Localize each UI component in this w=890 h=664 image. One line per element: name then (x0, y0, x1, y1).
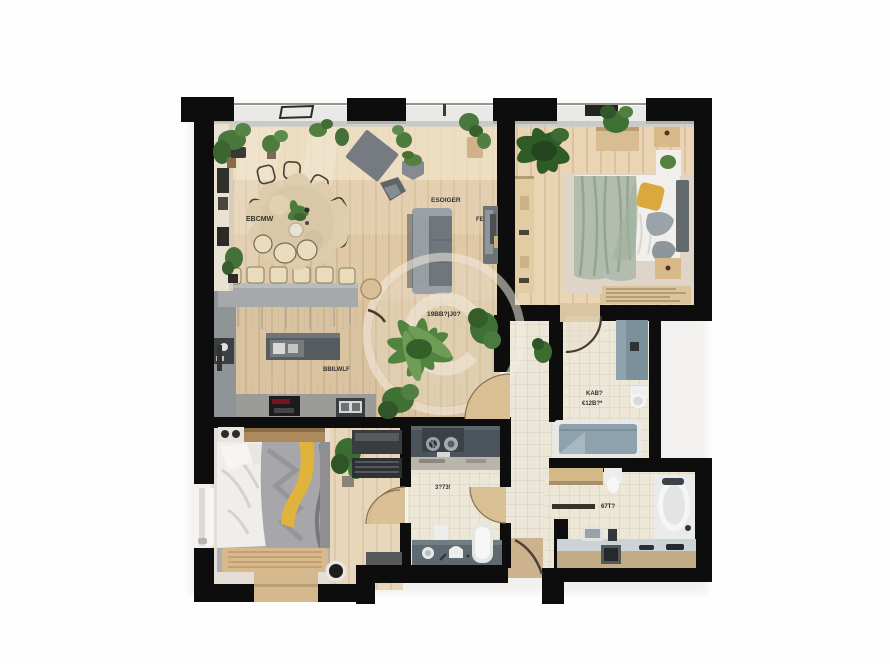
svg-text:EBCMW: EBCMW (246, 216, 274, 223)
svg-text:FE: FE (476, 217, 484, 223)
svg-text:3?73!: 3?73! (435, 485, 451, 491)
svg-text:KAB?: KAB? (586, 391, 603, 397)
svg-text:BBILWLF: BBILWLF (323, 367, 350, 373)
svg-text:ESOIGER: ESOIGER (431, 197, 461, 204)
svg-text:67T?: 67T? (601, 504, 615, 510)
svg-text:19BB?|J0?: 19BB?|J0? (427, 311, 461, 318)
svg-text:€12B?*: €12B?* (582, 401, 603, 407)
